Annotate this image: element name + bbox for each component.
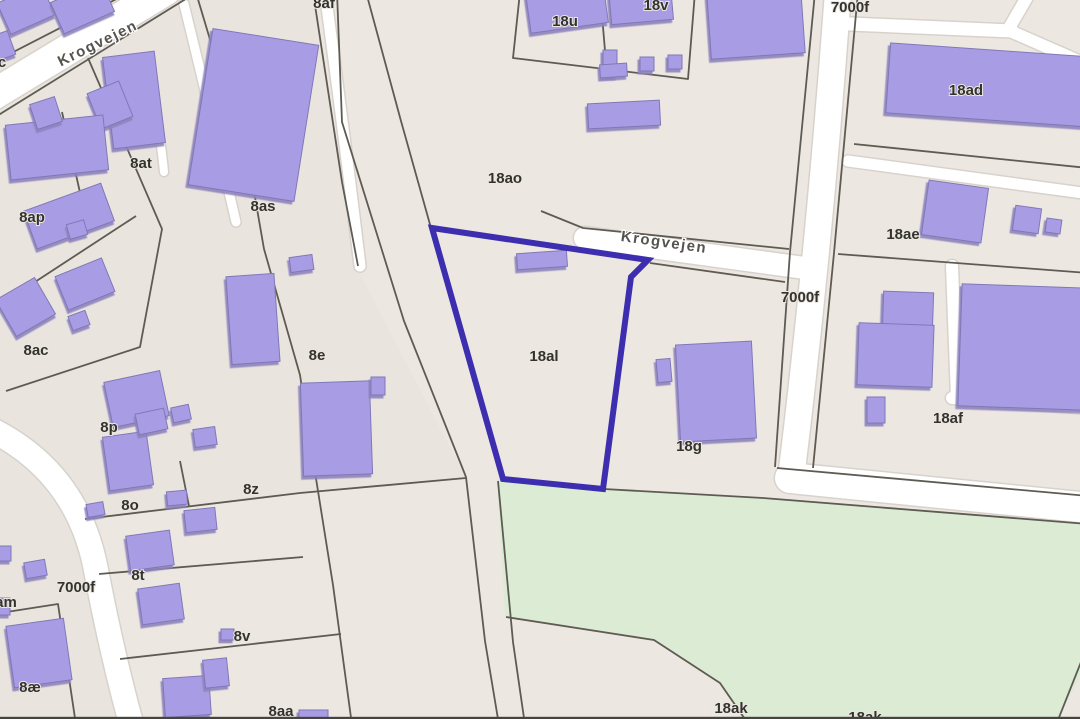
building [600, 63, 628, 78]
parcel-label-8af: 8af [313, 0, 336, 12]
parcel-label-8æ: 8æ [19, 679, 41, 696]
building [587, 100, 660, 129]
building [1045, 218, 1062, 234]
parcel-label-8aa: 8aa [268, 703, 294, 719]
parcel-label-18al: 18al [529, 348, 558, 365]
building [166, 490, 187, 506]
parcel-label-18ae: 18ae [886, 226, 919, 243]
building [126, 530, 174, 571]
building [102, 431, 153, 491]
parcel-label-8at: 8at [130, 155, 152, 172]
parcel-label-8o: 8o [121, 497, 139, 514]
building [193, 427, 217, 448]
building [640, 57, 654, 71]
building [86, 502, 105, 518]
building [171, 404, 192, 422]
road [952, 266, 957, 398]
building [184, 507, 217, 532]
road [850, 24, 1012, 31]
building [857, 323, 934, 388]
building [226, 273, 280, 364]
parcel-label-7000f: 7000f [831, 0, 870, 16]
parcel-label-18af: 18af [933, 410, 964, 427]
building [163, 675, 212, 717]
building [300, 381, 372, 476]
building [921, 180, 988, 243]
parcel-label-18g: 18g [676, 438, 702, 455]
building [707, 0, 805, 59]
building [0, 546, 11, 561]
parcel-label-7000f: 7000f [57, 579, 96, 596]
building [5, 115, 108, 180]
building [958, 284, 1080, 410]
map-canvas[interactable]: KrogvejenKrogvejenc8af18u18v7000f18ad8at… [0, 0, 1080, 719]
parcel-label-18ak: 18ak [714, 700, 748, 717]
building [138, 583, 185, 624]
map-viewport[interactable]: KrogvejenKrogvejenc8af18u18v7000f18ad8at… [0, 0, 1080, 719]
parcel-label-8ap: 8ap [19, 209, 45, 226]
parcel-label-8p: 8p [100, 419, 118, 436]
building [676, 341, 757, 442]
building [1012, 205, 1041, 233]
parcel-label-18ad: 18ad [949, 82, 983, 99]
parcel-label-18ao: 18ao [488, 170, 522, 187]
building [6, 618, 72, 687]
building [656, 358, 672, 382]
parcel-label-8v: 8v [234, 628, 251, 645]
parcel-label-8ac: 8ac [23, 342, 48, 359]
building [221, 629, 234, 640]
parcel-label-8z: 8z [243, 481, 259, 498]
parcel-label-18u: 18u [552, 13, 578, 30]
building [289, 254, 314, 272]
parcel-label-8e: 8e [309, 347, 326, 364]
building [371, 377, 385, 395]
parcel-label-18v: 18v [643, 0, 669, 14]
parcel-label-c: c [0, 54, 6, 71]
building [203, 658, 230, 688]
building [517, 250, 568, 269]
building [24, 559, 47, 578]
parcel-label-8t: 8t [131, 567, 144, 584]
building [867, 397, 885, 423]
building [668, 55, 682, 69]
parcel-label-am: am [0, 594, 17, 611]
parcel-label-7000f: 7000f [781, 289, 820, 306]
parcel-label-8as: 8as [250, 198, 275, 215]
